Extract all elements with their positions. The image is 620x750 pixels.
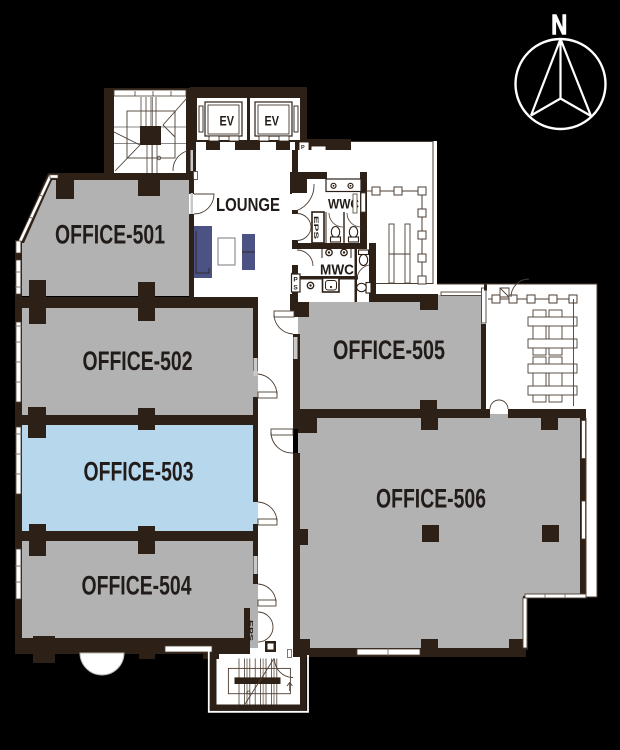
svg-text:P: P <box>293 277 298 284</box>
svg-text:EPS: EPS <box>247 620 254 642</box>
svg-text:S: S <box>293 285 298 292</box>
svg-text:OFFICE-501: OFFICE-501 <box>55 220 165 250</box>
svg-text:OFFICE-502: OFFICE-502 <box>83 346 193 376</box>
svg-text:EV: EV <box>265 112 280 128</box>
svg-text:MWC: MWC <box>320 262 354 279</box>
svg-text:OFFICE-505: OFFICE-505 <box>333 335 445 365</box>
svg-text:OFFICE-506: OFFICE-506 <box>376 484 486 514</box>
svg-text:EV: EV <box>220 112 235 128</box>
svg-text:EPS: EPS <box>312 216 319 240</box>
svg-text:OFFICE-503: OFFICE-503 <box>84 457 194 487</box>
svg-text:LOUNGE: LOUNGE <box>216 195 280 215</box>
svg-text:OFFICE-504: OFFICE-504 <box>82 571 192 601</box>
